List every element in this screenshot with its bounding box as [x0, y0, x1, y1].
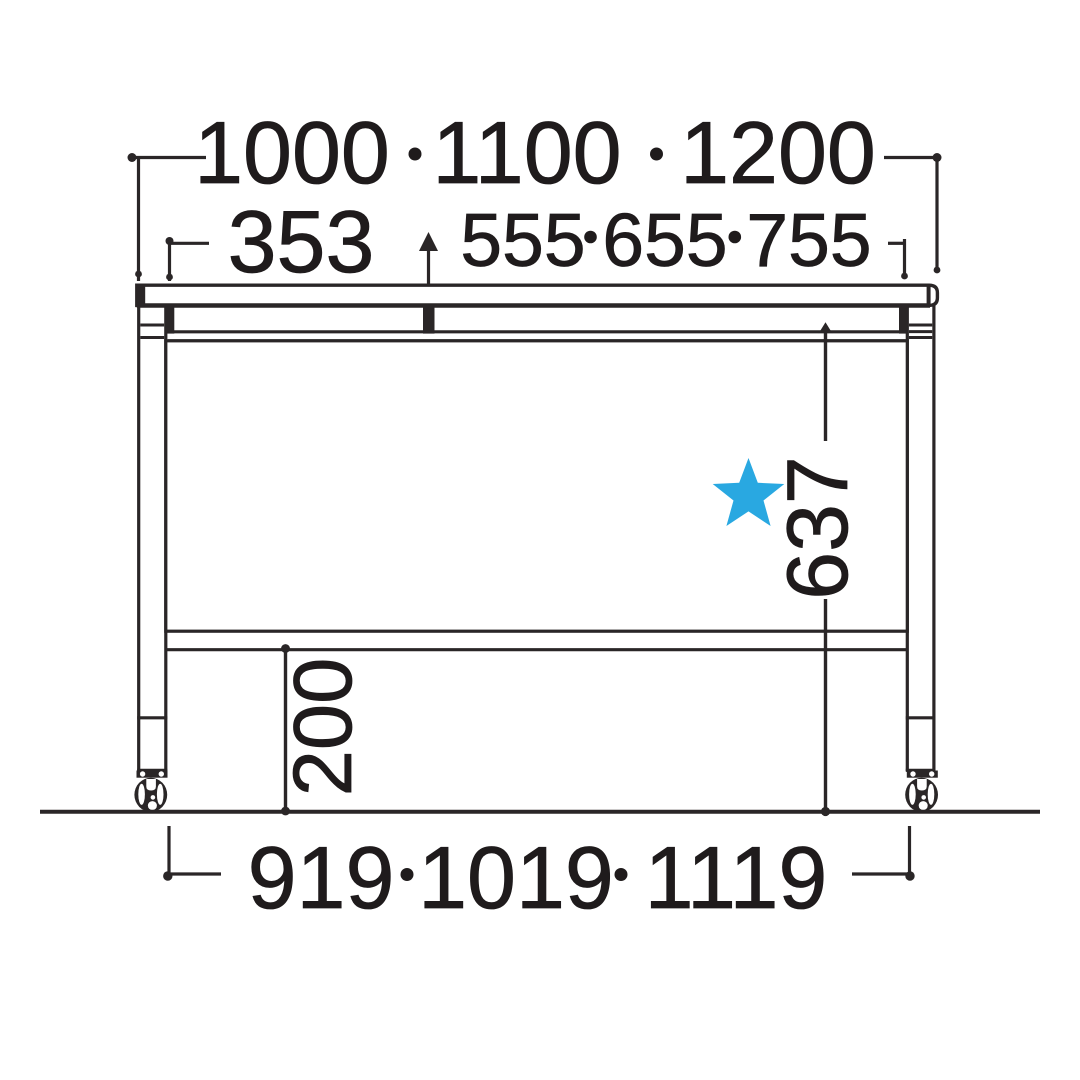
svg-text:1000: 1000	[194, 103, 390, 202]
svg-text:755: 755	[746, 198, 871, 282]
svg-text:555: 555	[460, 198, 585, 282]
svg-text:1019: 1019	[418, 828, 614, 927]
svg-text:655: 655	[602, 198, 727, 282]
svg-text:353: 353	[228, 192, 375, 291]
svg-text:637: 637	[770, 456, 866, 600]
svg-text:1200: 1200	[680, 103, 876, 202]
svg-text:919: 919	[248, 828, 395, 927]
svg-text:1100: 1100	[432, 103, 621, 202]
svg-text:200: 200	[276, 658, 369, 796]
svg-text:1119: 1119	[645, 828, 828, 927]
